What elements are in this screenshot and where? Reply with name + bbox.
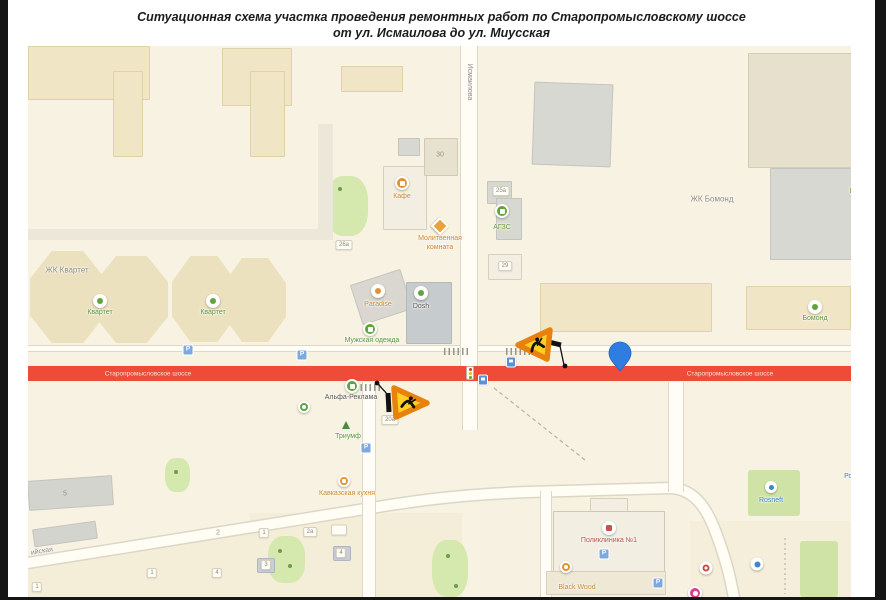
document-page: Ситуационная схема участка проведения ре…	[0, 0, 886, 600]
leader-dot	[375, 381, 380, 386]
scan-border-left	[0, 0, 8, 600]
leader-dot	[563, 364, 568, 369]
title-line-2: от ул. Исмаилова до ул. Миусская	[8, 26, 875, 42]
leader-line	[378, 384, 388, 395]
annotation-layer	[28, 46, 851, 597]
footpath-dashed	[494, 388, 585, 460]
roadwork-sign-left	[518, 330, 567, 368]
roadwork-sign-right	[375, 381, 427, 417]
scheme-title: Ситуационная схема участка проведения ре…	[8, 10, 875, 41]
sign-post	[388, 393, 389, 412]
scan-border-right	[875, 0, 886, 600]
location-pin-icon	[609, 342, 631, 371]
title-line-1: Ситуационная схема участка проведения ре…	[8, 10, 875, 26]
leader-line	[560, 346, 564, 365]
situational-map: Старопромысловское шоссе Старопромысловс…	[28, 46, 851, 597]
